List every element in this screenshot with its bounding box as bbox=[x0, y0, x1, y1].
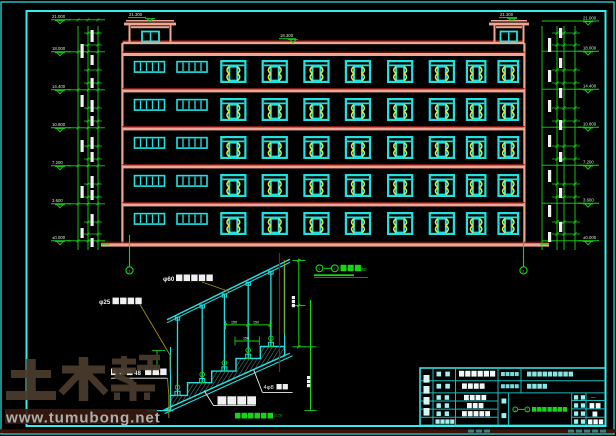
svg-text:21.300: 21.300 bbox=[500, 12, 514, 17]
svg-text:10.800: 10.800 bbox=[583, 122, 597, 127]
svg-text:1:100: 1:100 bbox=[356, 267, 367, 272]
svg-text:±0.000: ±0.000 bbox=[52, 235, 66, 240]
svg-text:150: 150 bbox=[253, 320, 259, 324]
svg-text:14.400: 14.400 bbox=[52, 84, 66, 89]
svg-text:18.000: 18.000 bbox=[52, 46, 66, 51]
svg-text:150: 150 bbox=[243, 337, 249, 341]
svg-text:φ60: φ60 bbox=[163, 276, 175, 283]
svg-text:3.600: 3.600 bbox=[583, 198, 594, 203]
svg-text:φ25: φ25 bbox=[99, 299, 111, 306]
svg-text:18.000: 18.000 bbox=[583, 46, 597, 51]
svg-text:14.400: 14.400 bbox=[583, 84, 597, 89]
svg-text:150: 150 bbox=[231, 320, 237, 324]
svg-text:3.600: 3.600 bbox=[52, 198, 63, 203]
svg-text:4φ8: 4φ8 bbox=[264, 385, 274, 391]
svg-text:7.200: 7.200 bbox=[52, 160, 63, 165]
svg-text:18.300: 18.300 bbox=[280, 33, 294, 38]
svg-text:7: 7 bbox=[526, 408, 528, 412]
svg-text:21.300: 21.300 bbox=[129, 12, 143, 17]
svg-text:—: — bbox=[591, 395, 596, 400]
svg-text:1:20: 1:20 bbox=[275, 414, 282, 418]
svg-text:1: 1 bbox=[514, 408, 516, 412]
svg-text:7.200: 7.200 bbox=[583, 160, 594, 165]
svg-text:10.800: 10.800 bbox=[52, 122, 66, 127]
svg-text:21.000: 21.000 bbox=[583, 15, 597, 20]
svg-text:21.000: 21.000 bbox=[52, 14, 66, 19]
svg-text:www.tumubong.net: www.tumubong.net bbox=[5, 409, 161, 426]
svg-text:±0.000: ±0.000 bbox=[583, 235, 597, 240]
